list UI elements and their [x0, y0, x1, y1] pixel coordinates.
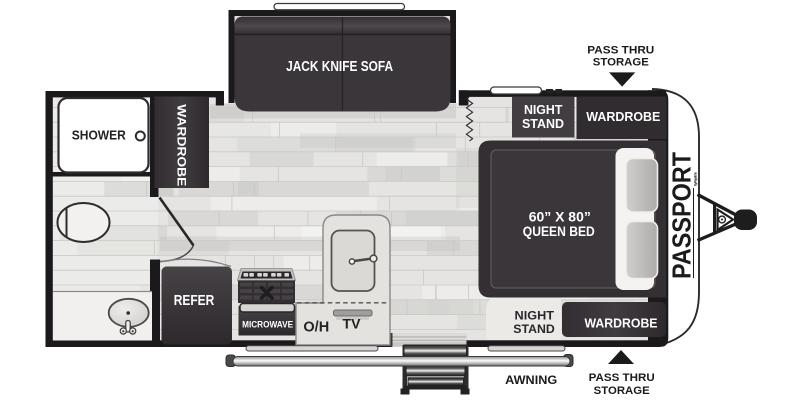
- svg-text:by Keystone: by Keystone: [693, 172, 697, 186]
- svg-text:JACK KNIFE SOFA: JACK KNIFE SOFA: [286, 59, 393, 75]
- svg-text:STAND: STAND: [513, 322, 555, 336]
- svg-text:WARDROBE: WARDROBE: [585, 316, 658, 331]
- svg-text:NIGHT: NIGHT: [515, 309, 555, 323]
- svg-text:STORAGE: STORAGE: [593, 57, 649, 69]
- svg-text:STORAGE: STORAGE: [594, 385, 650, 397]
- svg-text:STAND: STAND: [522, 117, 564, 131]
- svg-text:NIGHT: NIGHT: [524, 103, 563, 117]
- svg-text:QUEEN BED: QUEEN BED: [523, 224, 595, 239]
- svg-text:TV: TV: [343, 316, 362, 332]
- svg-text:PASS THRU: PASS THRU: [589, 372, 655, 384]
- svg-text:O/H: O/H: [303, 320, 329, 336]
- svg-text:MICROWAVE: MICROWAVE: [242, 320, 293, 330]
- svg-text:PASSPORT: PASSPORT: [667, 152, 697, 279]
- svg-text:WARDROBE: WARDROBE: [175, 104, 189, 186]
- svg-text:AWNING: AWNING: [505, 373, 557, 387]
- svg-text:PASS THRU: PASS THRU: [587, 45, 654, 57]
- svg-text:SHOWER: SHOWER: [72, 128, 126, 143]
- svg-text:WARDROBE: WARDROBE: [586, 109, 660, 124]
- svg-text:REFER: REFER: [174, 292, 215, 309]
- svg-text:60” X 80”: 60” X 80”: [529, 210, 591, 225]
